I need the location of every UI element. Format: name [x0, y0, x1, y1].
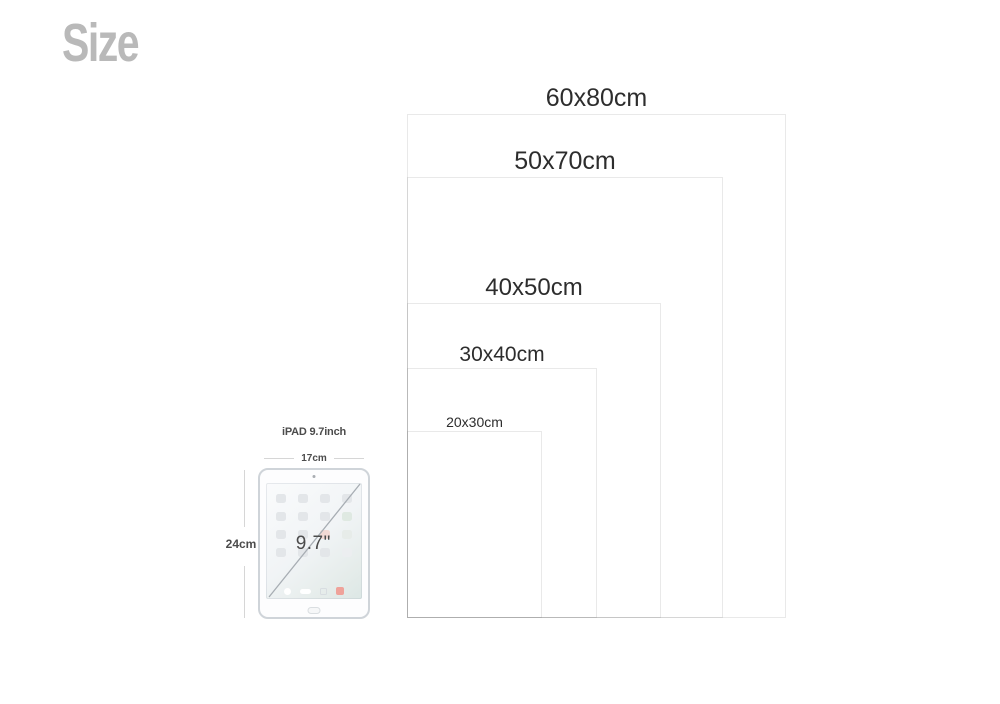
camera-dot-icon [313, 475, 316, 478]
ipad-height-label: 24cm [219, 537, 263, 551]
size-label-60x80: 60x80cm [408, 84, 785, 113]
dimension-dash-right [334, 458, 364, 459]
size-comparison-diagram: Size 60x80cm 50x70cm 40x50cm 30x40cm 20x… [0, 0, 1000, 704]
size-label-20x30: 20x30cm [408, 414, 541, 430]
size-label-50x70: 50x70cm [408, 147, 722, 176]
dimension-dash-left [264, 458, 294, 459]
ipad-height-dimension-line-bottom [244, 566, 245, 618]
ipad-diagonal-label: 9.7" [296, 533, 331, 555]
size-rect-20x30: 20x30cm [407, 431, 542, 618]
ipad-height-dimension-line-top [244, 470, 245, 527]
dock-pill-icon [300, 589, 311, 594]
dock-circle-icon [284, 588, 291, 595]
dock-square-icon [320, 588, 327, 595]
size-label-40x50: 40x50cm [408, 274, 660, 302]
dock-red-app-icon [336, 587, 344, 595]
page-title: Size [62, 12, 138, 74]
ipad-width-dimension: 17cm [254, 453, 374, 464]
ipad-screen: 9.7" [266, 483, 362, 599]
ipad-name-label: iPAD 9.7inch [258, 426, 370, 438]
home-button-icon [308, 607, 321, 614]
size-label-30x40: 30x40cm [408, 343, 596, 367]
ipad-illustration: 9.7" [258, 468, 370, 619]
ipad-width-label: 17cm [301, 453, 327, 464]
dock-icons [266, 587, 362, 595]
